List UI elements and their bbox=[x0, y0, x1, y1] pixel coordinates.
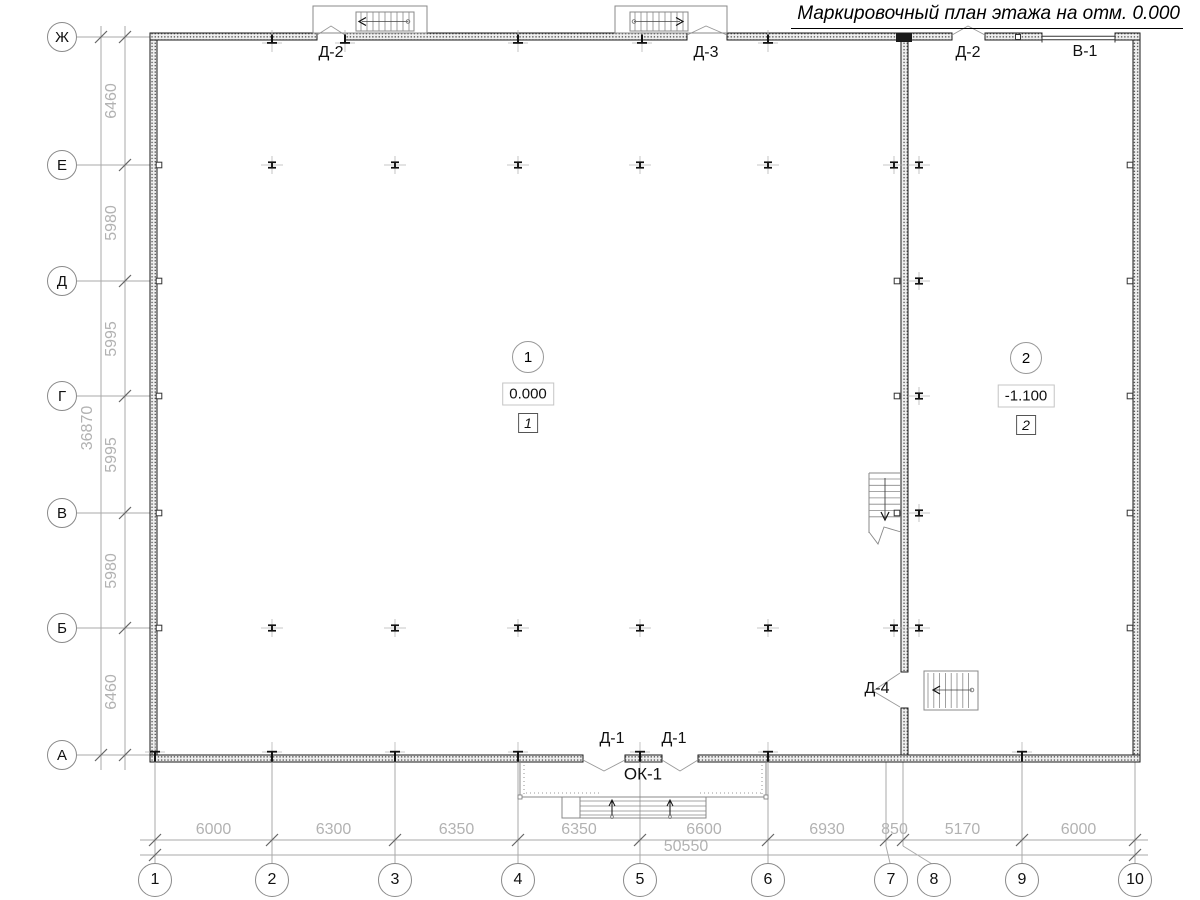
drawing-title: Маркировочный план этажа на отм. 0.000 bbox=[791, 3, 1183, 29]
dim-bottom-3: 6350 bbox=[561, 822, 597, 838]
axis-col-bubble-4: 5 bbox=[623, 863, 657, 897]
room-2-number-circle: 2 bbox=[1010, 342, 1042, 374]
dim-bottom-4: 6600 bbox=[686, 822, 722, 838]
stairs bbox=[313, 6, 978, 710]
room-1-elevation: 0.000 bbox=[502, 383, 554, 406]
axis-col-bubble-5: 6 bbox=[751, 863, 785, 897]
axis-col-bubble-8: 9 bbox=[1005, 863, 1039, 897]
room-2-tag: 2 bbox=[1016, 415, 1036, 435]
axis-row-bubble-5: Б bbox=[47, 613, 77, 643]
door-label-d2-right: Д-2 bbox=[955, 45, 980, 61]
dim-bottom-8: 6000 bbox=[1061, 822, 1097, 838]
room-1-tag: 1 bbox=[518, 413, 538, 433]
axis-row-bubble-1: Е bbox=[47, 150, 77, 180]
floor-plan-drawing: Маркировочный план этажа на отм. 0.000 Д… bbox=[0, 0, 1200, 900]
dim-bottom-0: 6000 bbox=[196, 822, 232, 838]
axis-col-bubble-6: 7 bbox=[874, 863, 908, 897]
axis-row-bubble-4: В bbox=[47, 498, 77, 528]
dim-bottom-2: 6350 bbox=[439, 822, 475, 838]
axis-col-bubble-1: 2 bbox=[255, 863, 289, 897]
door-label-d4: Д-4 bbox=[864, 681, 889, 697]
axis-row-bubble-3: Г bbox=[47, 381, 77, 411]
dim-left-0: 6460 bbox=[104, 83, 120, 119]
room-2-elevation: -1.100 bbox=[998, 385, 1055, 408]
dim-bottom-7: 5170 bbox=[945, 822, 981, 838]
axis-row-bubble-0: Ж bbox=[47, 22, 77, 52]
axis-col-bubble-0: 1 bbox=[138, 863, 172, 897]
dim-bottom-1: 6300 bbox=[316, 822, 352, 838]
axis-row-bubble-6: А bbox=[47, 740, 77, 770]
dim-left-4: 5980 bbox=[104, 553, 120, 589]
axis-col-bubble-9: 10 bbox=[1118, 863, 1152, 897]
dim-left-total: 36870 bbox=[80, 406, 96, 451]
axis-col-bubble-2: 3 bbox=[378, 863, 412, 897]
dim-bottom-6: 850 bbox=[881, 822, 908, 838]
door-label-d1-a: Д-1 bbox=[599, 731, 624, 747]
door-label-d2-left: Д-2 bbox=[318, 45, 343, 61]
plan-linework bbox=[0, 0, 1200, 900]
axis-col-bubble-3: 4 bbox=[501, 863, 535, 897]
dim-left-5: 6460 bbox=[104, 674, 120, 710]
axis-col-bubble-7: 8 bbox=[917, 863, 951, 897]
axis-row-bubble-2: Д bbox=[47, 266, 77, 296]
dim-left-1: 5980 bbox=[104, 205, 120, 241]
dim-left-2: 5995 bbox=[104, 321, 120, 357]
columns bbox=[145, 30, 1133, 764]
building-walls bbox=[150, 33, 1140, 762]
dim-bottom-total: 50550 bbox=[664, 839, 709, 855]
door-label-d1-b: Д-1 bbox=[661, 731, 686, 747]
door-label-d3: Д-3 bbox=[693, 45, 718, 61]
window-label-ok1: ОК-1 bbox=[624, 766, 662, 783]
dim-bottom-5: 6930 bbox=[809, 822, 845, 838]
dim-left-3: 5995 bbox=[104, 437, 120, 473]
door-swings bbox=[317, 26, 985, 771]
room-1-number-circle: 1 bbox=[512, 341, 544, 373]
gate-label-v1: В-1 bbox=[1073, 44, 1098, 60]
